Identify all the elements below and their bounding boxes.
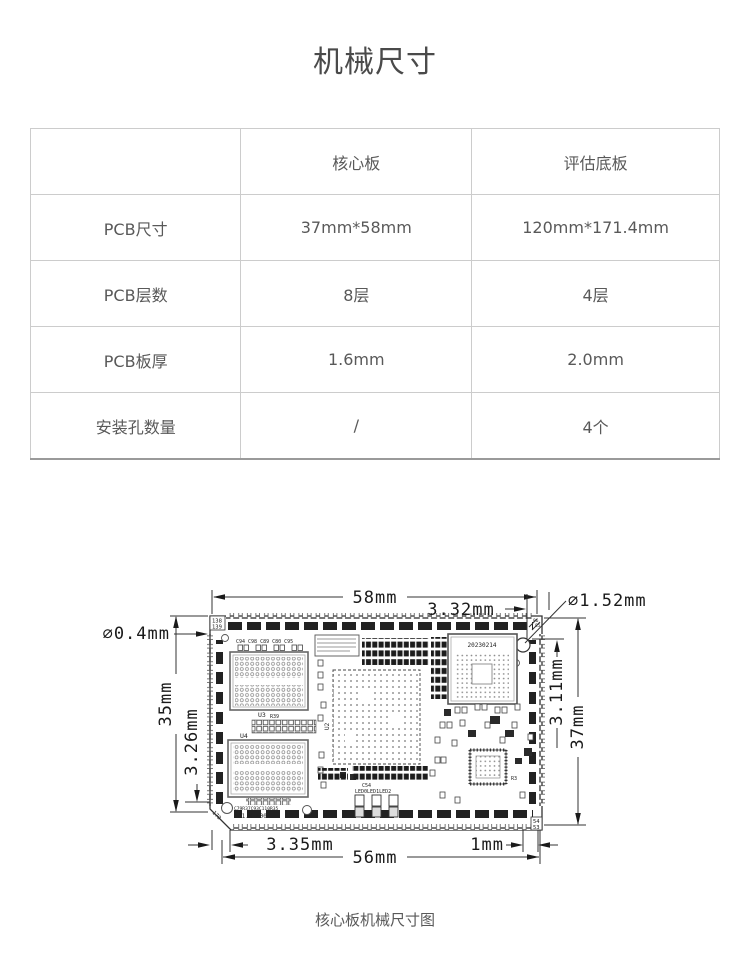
u4-label: U4 — [240, 732, 248, 740]
dim-pad-diameter: ∅0.4mm — [103, 624, 208, 644]
version-label: A1.0-000 — [238, 813, 267, 820]
dim-3-26mm-label: 3.26mm — [182, 708, 202, 775]
led-labels: LED0LED1LED2 — [355, 789, 391, 795]
header-core-board: 核心板 — [241, 129, 472, 195]
dim-3-32mm-label: 3.32mm — [427, 600, 494, 620]
dim-56mm-label: 56mm — [353, 848, 398, 868]
header-empty-cell — [31, 129, 241, 195]
header-eval-board: 评估底板 — [472, 129, 720, 195]
dim-1-52mm-label: ∅1.52mm — [568, 591, 647, 611]
led-components — [355, 795, 398, 817]
dim-3-26mm: 3.26mm — [182, 708, 210, 802]
row-label: 安装孔数量 — [31, 393, 241, 460]
pin-53-label: 53 — [533, 825, 540, 831]
central-bga-u2: U2 — [324, 670, 420, 764]
pin-139-label: 139 — [212, 625, 222, 631]
dim-3-35mm: 3.35mm — [188, 830, 334, 855]
dim-3-11mm-label: 3.11mm — [547, 658, 567, 725]
right-bga-chip: 20230214 — [448, 634, 517, 704]
cell-base: 4个 — [472, 393, 720, 460]
dim-37mm-label: 37mm — [568, 705, 588, 750]
dim-1mm: 1mm — [470, 830, 558, 855]
table-header-row: 核心板 评估底板 — [31, 129, 720, 195]
row-label: PCB层数 — [31, 261, 241, 327]
table-row: PCB板厚 1.6mm 2.0mm — [31, 327, 720, 393]
u2-label: U2 — [324, 722, 331, 730]
caps-row-label: C94 C98 C89 C80 C95 — [236, 639, 293, 645]
table-row: 安装孔数量 / 4个 — [31, 393, 720, 460]
memory-chip-u4: U4 — [228, 732, 308, 797]
diagram-caption: 核心板机械尺寸图 — [0, 909, 750, 930]
r3-label: R3 — [511, 776, 517, 782]
page-title: 机械尺寸 — [0, 0, 750, 82]
table-row: PCB层数 8层 4层 — [31, 261, 720, 327]
bottom-refs-label: C79R37C93C110R35 — [234, 806, 278, 812]
cell-base: 120mm*171.4mm — [472, 195, 720, 261]
cell-core: 37mm*58mm — [241, 195, 472, 261]
dimensions-table: 核心板 评估底板 PCB尺寸 37mm*58mm 120mm*171.4mm P… — [30, 128, 720, 460]
u3-label: U3 — [258, 711, 266, 719]
cell-core: 1.6mm — [241, 327, 472, 393]
cell-core: 8层 — [241, 261, 472, 327]
dim-0-4mm-label: ∅0.4mm — [103, 624, 170, 644]
date-code-label: 20230214 — [468, 642, 497, 649]
dim-35mm-label: 35mm — [156, 682, 176, 727]
r39-label: R39 — [270, 714, 279, 720]
cell-base: 4层 — [472, 261, 720, 327]
dim-1mm-label: 1mm — [470, 835, 504, 855]
table-row: PCB尺寸 37mm*58mm 120mm*171.4mm — [31, 195, 720, 261]
row-label: PCB尺寸 — [31, 195, 241, 261]
cell-core: / — [241, 393, 472, 460]
pcb-mechanical-diagram: 138 139 86 85 54 53 170 C94 C98 C89 C80 … — [0, 552, 750, 902]
dim-3-35mm-label: 3.35mm — [266, 835, 333, 855]
dim-58mm-label: 58mm — [353, 588, 398, 608]
cell-base: 2.0mm — [472, 327, 720, 393]
row-label: PCB板厚 — [31, 327, 241, 393]
